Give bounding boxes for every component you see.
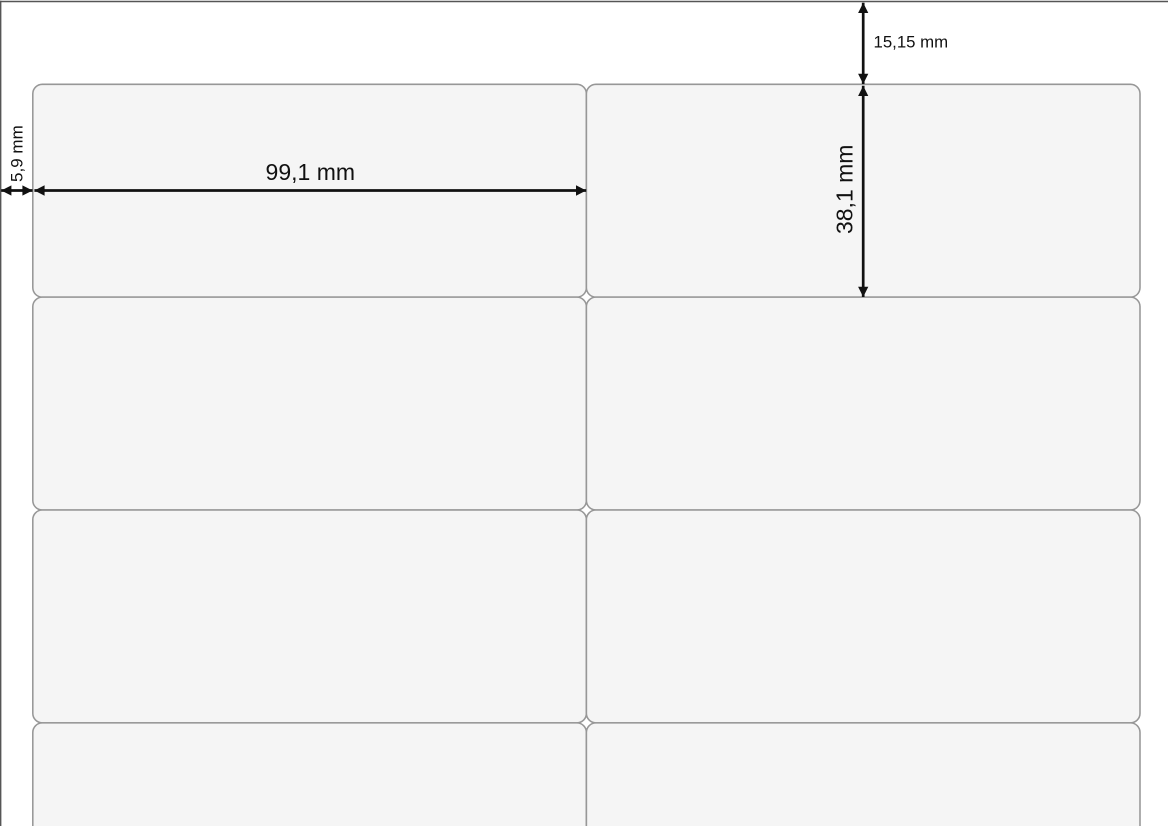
svg-text:15,15 mm: 15,15 mm [874, 33, 949, 52]
svg-text:38,1 mm: 38,1 mm [831, 145, 857, 234]
svg-text:99,1 mm: 99,1 mm [266, 159, 355, 185]
svg-text:5,9 mm: 5,9 mm [7, 125, 26, 182]
